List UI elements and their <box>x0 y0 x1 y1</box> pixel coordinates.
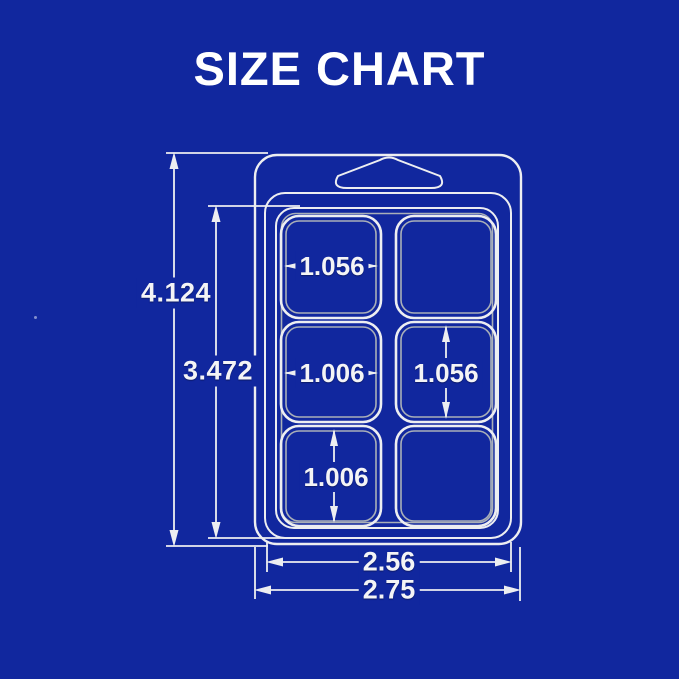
arrow-up-icon <box>170 152 179 169</box>
hang-hole-icon <box>336 158 442 189</box>
label-overall-width: 2.75 <box>359 575 420 606</box>
label-cavity-width-top: 1.056 <box>295 251 368 281</box>
cavity-top-right <box>396 216 496 318</box>
label-cavity-width-mid: 1.006 <box>295 358 368 388</box>
arrow-left-icon <box>266 558 283 567</box>
arrow-left-icon <box>254 586 271 595</box>
arrow-right-icon <box>504 586 521 595</box>
arrow-right-icon <box>495 558 512 567</box>
label-body-height: 3.472 <box>179 356 257 387</box>
cavity-bottom-right <box>396 426 496 526</box>
clamshell-outline <box>255 155 521 544</box>
arrow-down-icon <box>170 530 179 547</box>
clamshell-diagram <box>0 0 679 679</box>
label-overall-height: 4.124 <box>137 278 215 309</box>
label-cavity-height-bottom: 1.006 <box>299 462 372 492</box>
arrow-up-icon <box>212 205 221 222</box>
image-artifact-speck <box>34 316 37 319</box>
label-body-width: 2.56 <box>359 547 420 578</box>
label-cavity-height-mid: 1.056 <box>409 358 482 388</box>
size-chart-image: SIZE CHART <box>0 0 679 679</box>
arrow-down-icon <box>212 522 221 539</box>
